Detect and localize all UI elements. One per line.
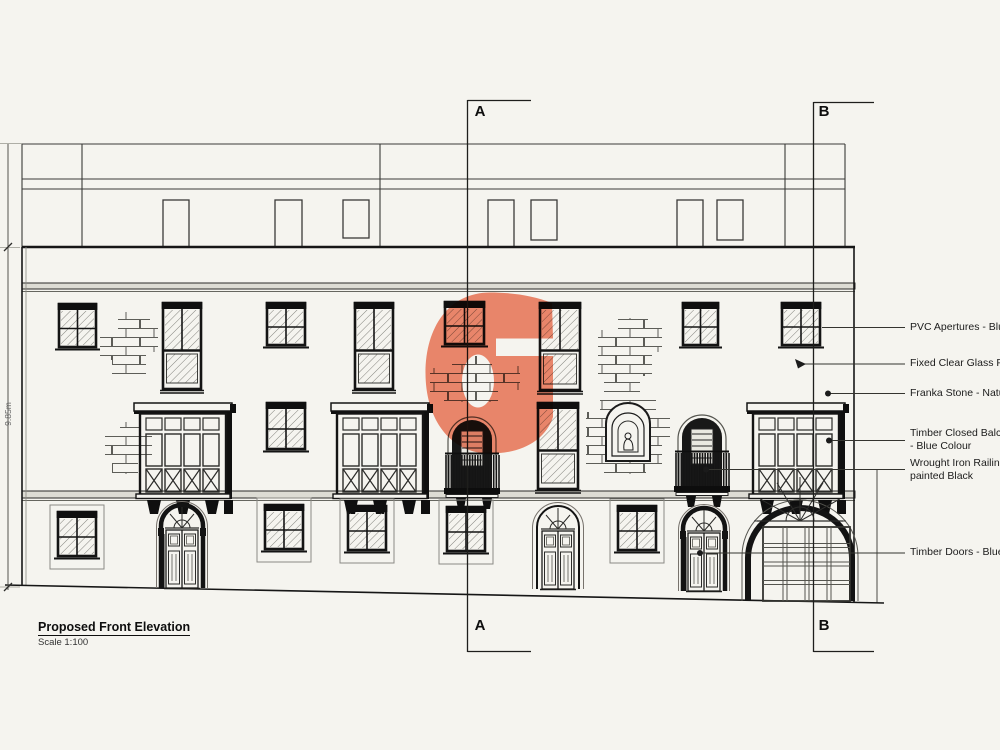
section-marker-b-top: B (814, 103, 834, 120)
section-marker-a-bottom: A (470, 617, 490, 634)
drawing-scale: Scale 1:100 (38, 637, 88, 648)
elevation-drawing (0, 0, 1000, 750)
middle-window (263, 402, 309, 452)
annotation-glass-panels: Fixed Clear Glass Panels (910, 357, 1000, 370)
annotation-closed-balcony-line1: Timber Closed Balcony (910, 427, 1000, 440)
annotation-closed-balcony-line2: - Blue Colour (910, 440, 1000, 453)
section-marker-a-top: A (470, 103, 490, 120)
annotation-iron-railings-line2: painted Black (910, 470, 1000, 483)
ground-window-sash (443, 506, 489, 554)
section-marker-b-bottom: B (814, 617, 834, 634)
annotation-pvc-apertures: PVC Apertures - Blue Colour (910, 321, 1000, 334)
closed-timber-balcony (747, 403, 849, 514)
closed-timber-balcony (331, 403, 433, 514)
upper-window (679, 302, 722, 348)
timber-door (157, 502, 208, 589)
upper-french-window (352, 302, 396, 393)
upper-window (263, 302, 309, 348)
section-line-b (814, 102, 875, 652)
ground-window-sash (54, 511, 100, 559)
upper-french-window (160, 302, 204, 393)
closed-timber-balcony (134, 403, 236, 514)
elevation-drawing-sheet: A A B B PVC Apertures - Blue Colour Fixe… (0, 0, 1000, 750)
annotation-franka-stone: Franka Stone - Natural (910, 387, 1000, 400)
height-dimension-label: 9.85m (3, 395, 13, 433)
ground-window-sash (261, 504, 307, 552)
annotation-closed-balcony: Timber Closed Balcony - Blue Colour (910, 427, 1000, 453)
open-balcony-railings (674, 415, 730, 507)
upper-window-pvc (778, 302, 824, 348)
annotation-timber-doors: Timber Doors - Blue Colour (910, 546, 1000, 559)
ground-line (5, 585, 884, 603)
upper-window (55, 303, 100, 350)
annotation-iron-railings: Wrought Iron Railings painted Black (910, 457, 1000, 483)
timber-door-centre (533, 503, 584, 590)
leader-arrow (795, 359, 806, 369)
roof-openings (163, 200, 743, 247)
dimension-line (0, 144, 22, 592)
statue-niche (606, 403, 650, 461)
annotation-iron-railings-line1: Wrought Iron Railings (910, 457, 1000, 470)
roof-storey (22, 144, 845, 247)
drawing-title: Proposed Front Elevation (38, 620, 190, 636)
timber-door (679, 505, 730, 592)
ground-window-sash (614, 505, 660, 553)
